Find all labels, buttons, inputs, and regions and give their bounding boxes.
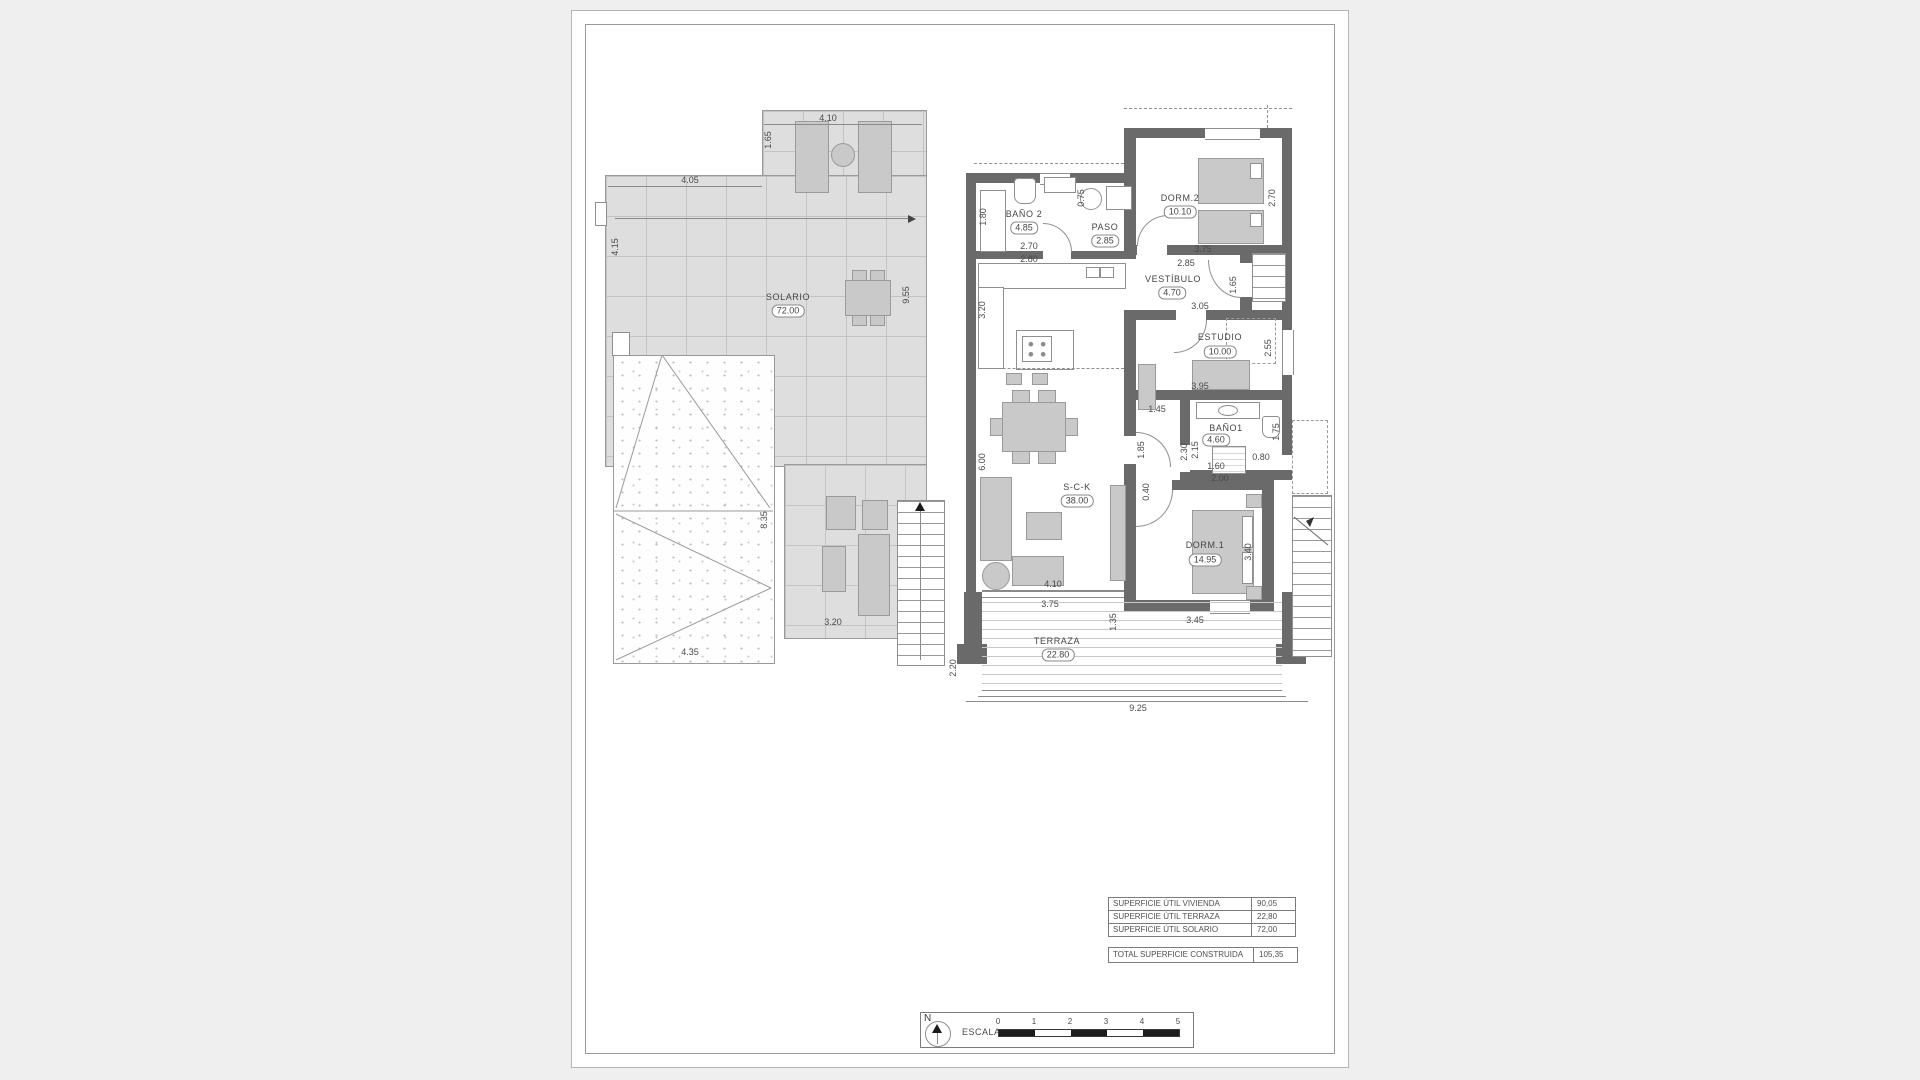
dim-label: 9.25	[1129, 703, 1147, 713]
dining-chair	[1012, 451, 1030, 464]
sun-lounger	[858, 121, 892, 193]
area-summary-table: SUPERFICIE ÚTIL VIVIENDA 90,05 SUPERFICI…	[1108, 897, 1296, 937]
terrace-chair	[852, 315, 867, 326]
dim-label: 3.20	[977, 301, 987, 319]
basin	[1218, 405, 1238, 416]
dim-label: 4.05	[681, 175, 699, 185]
compass-needle-line	[937, 1033, 938, 1044]
dim-label: 3.40	[1243, 543, 1253, 561]
terrace-chair	[870, 315, 885, 326]
stairs-dashed	[1292, 420, 1328, 494]
entry-stairs	[1252, 253, 1286, 302]
dim-label: 1.75	[1271, 423, 1281, 441]
washbasin	[1044, 177, 1076, 193]
dim-label: 4.10	[819, 113, 837, 123]
sliding-door	[982, 590, 1124, 592]
total-area-row: TOTAL SUPERFICIE CONSTRUIDA 105,35	[1108, 947, 1298, 963]
dim-label: 1.35	[1108, 613, 1118, 631]
dim-label: 8.35	[759, 511, 769, 529]
kitchen-living-divider	[978, 368, 1124, 369]
scale-tick: 4	[1140, 1017, 1144, 1026]
dim-label: 2.70	[1020, 241, 1038, 251]
chimney-box	[612, 332, 630, 356]
scale-tick: 2	[1068, 1017, 1072, 1026]
wall	[1282, 375, 1292, 455]
table-cell-label: SUPERFICIE ÚTIL VIVIENDA	[1109, 898, 1252, 910]
dining-chair	[1012, 390, 1030, 403]
dim-label: 9.55	[901, 286, 911, 304]
overhang-dashed-line	[1267, 105, 1268, 128]
room-label-dorm2: DORM.2	[1161, 193, 1200, 203]
table-row: SUPERFICIE ÚTIL SOLARIO 72,00	[1108, 924, 1296, 937]
table-cell-value: 72,00	[1252, 924, 1295, 936]
pillow	[1250, 163, 1262, 179]
dining-chair	[1038, 451, 1056, 464]
roof-hip-lines	[613, 355, 773, 662]
table-cell-value: 90,05	[1252, 898, 1295, 910]
wall	[1240, 255, 1252, 263]
pouf	[982, 562, 1010, 590]
dim-label: 2.85	[1177, 258, 1195, 268]
dim-label: 4.15	[610, 238, 620, 256]
room-area-terraza: 22.80	[1042, 649, 1075, 662]
kitchen-sink	[1086, 267, 1100, 278]
room-area-solario: 72.00	[772, 305, 805, 318]
kitchen-sink	[1100, 267, 1114, 278]
laundry-unit	[1106, 186, 1132, 210]
wall	[1180, 472, 1190, 480]
dim-label: 6.00	[977, 453, 987, 471]
table-row: SUPERFICIE ÚTIL VIVIENDA 90,05	[1108, 897, 1296, 911]
round-table	[831, 143, 855, 167]
dim-label: 1.45	[1148, 404, 1166, 414]
dim-label: 4.10	[1044, 579, 1062, 589]
dim-label: 3.45	[1186, 615, 1204, 625]
dim-label: 3.75	[1041, 599, 1059, 609]
dim-label: 2.70	[1267, 189, 1277, 207]
dim-label: 3.05	[1191, 301, 1209, 311]
total-label: TOTAL SUPERFICIE CONSTRUIDA	[1109, 948, 1254, 962]
scale-tick: 3	[1104, 1017, 1108, 1026]
room-area-sck: 38.00	[1061, 495, 1094, 508]
room-area-paso: 2.85	[1091, 235, 1119, 248]
terrace-step	[982, 690, 1282, 691]
north-arrow-icon	[932, 1024, 942, 1033]
room-area-dorm2: 10.10	[1164, 206, 1197, 219]
scale-segment	[1071, 1030, 1107, 1036]
window	[1205, 128, 1260, 140]
total-value: 105,35	[1254, 948, 1297, 962]
stairs-center-line	[920, 510, 921, 660]
scale-tick: 0	[996, 1017, 1000, 1026]
dim-label: 0.75	[1076, 189, 1086, 207]
room-label-solario: SOLARIO	[766, 292, 810, 302]
table-cell-label: SUPERFICIE ÚTIL TERRAZA	[1109, 911, 1252, 923]
dining-chair	[990, 418, 1003, 436]
dim-line	[966, 701, 1308, 702]
dim-label: 3.20	[824, 617, 842, 627]
kitchen-counter	[978, 287, 1004, 369]
dim-line	[764, 124, 922, 125]
terrace-chair	[852, 270, 867, 281]
dim-label: 1.65	[763, 131, 773, 149]
dim-label: 3.95	[1191, 381, 1209, 391]
chimney-box	[595, 202, 607, 226]
dim-label: 4.35	[681, 647, 699, 657]
room-label-estudio: ESTUDIO	[1198, 332, 1242, 342]
toilet	[1014, 178, 1036, 204]
room-area-dorm1: 14.95	[1189, 554, 1222, 567]
dim-label: 1.80	[978, 208, 988, 226]
room-area-estudio: 10.00	[1204, 346, 1237, 359]
tv-cabinet	[1110, 485, 1126, 581]
dim-label: 2.80	[1020, 254, 1038, 264]
nightstand	[1246, 494, 1262, 508]
nightstand	[1246, 586, 1262, 600]
drain-arrow-icon	[908, 215, 916, 223]
scale-bar	[998, 1029, 1180, 1037]
room-label-banio1: BAÑO1	[1209, 423, 1243, 433]
scale-tick: 5	[1176, 1017, 1180, 1026]
dim-label: 2.30	[1179, 443, 1189, 461]
dim-line	[608, 186, 762, 187]
dim-label: 2.55	[1263, 339, 1273, 357]
terrace-pillar	[964, 592, 982, 650]
table-cell-value: 22,80	[1252, 911, 1295, 923]
dim-label: 1.60	[1207, 461, 1225, 471]
wall	[1124, 316, 1136, 436]
terrace-step	[978, 696, 1286, 697]
dining-table	[1002, 402, 1066, 452]
terrace-table	[845, 280, 891, 316]
room-label-vestibulo: VESTÍBULO	[1145, 274, 1201, 284]
overhang-dashed-line	[974, 163, 1124, 164]
room-area-banio2: 4.85	[1010, 222, 1038, 235]
terrace-decking	[982, 602, 1282, 688]
pillow	[1250, 213, 1262, 227]
table-row: SUPERFICIE ÚTIL TERRAZA 22,80	[1108, 911, 1296, 924]
dim-label: 2.15	[1190, 441, 1200, 459]
dim-label: 1.85	[1136, 441, 1146, 459]
lounge-chair	[826, 496, 856, 530]
room-label-terraza: TERRAZA	[1034, 636, 1080, 646]
scale-segment	[999, 1030, 1035, 1036]
room-area-vestibulo: 4.70	[1158, 287, 1186, 300]
wall	[1124, 245, 1137, 255]
side-stairs-arrow	[1292, 495, 1330, 655]
wall	[1180, 400, 1190, 445]
lounge-table	[822, 546, 846, 592]
stairs-up-arrow-icon	[915, 502, 925, 511]
stairs	[897, 500, 945, 666]
dim-line	[982, 597, 1124, 598]
dim-label: 3.75	[1194, 244, 1212, 254]
wall	[1282, 318, 1292, 330]
window	[1282, 330, 1294, 375]
roof-drain-line	[615, 218, 908, 219]
room-label-dorm1: DORM.1	[1186, 540, 1225, 550]
dining-chair	[1065, 418, 1078, 436]
room-label-sck: S-C-K	[1063, 482, 1091, 492]
dim-label: 1.65	[1228, 276, 1238, 294]
sun-lounger	[795, 121, 829, 193]
table-cell-label: SUPERFICIE ÚTIL SOLARIO	[1109, 924, 1252, 936]
wall	[1262, 490, 1274, 612]
wall	[966, 173, 976, 600]
stove	[1022, 336, 1052, 362]
dim-label: 0.80	[1252, 452, 1270, 462]
room-area-banio1: 4.60	[1202, 434, 1230, 447]
sun-lounger	[858, 534, 890, 616]
room-label-paso: PASO	[1092, 222, 1119, 232]
sofa	[980, 477, 1012, 561]
stool	[1006, 373, 1022, 385]
scale-segment	[1143, 1030, 1179, 1036]
terrace-chair	[870, 270, 885, 281]
wall	[1071, 251, 1118, 259]
drawing-canvas: SOLARIO 72.00 4.10 1.65 4.05 4.15 9.55 8…	[0, 0, 1920, 1080]
stool	[1032, 373, 1048, 385]
dim-label: 2.20	[948, 659, 958, 677]
scale-tick: 1	[1032, 1017, 1036, 1026]
dim-label: 2.00	[1211, 473, 1229, 483]
dim-label: 0.40	[1141, 483, 1151, 501]
dining-chair	[1038, 390, 1056, 403]
coffee-table	[1026, 512, 1062, 540]
lounge-chair	[862, 500, 888, 530]
room-label-banio2: BAÑO 2	[1006, 209, 1043, 219]
